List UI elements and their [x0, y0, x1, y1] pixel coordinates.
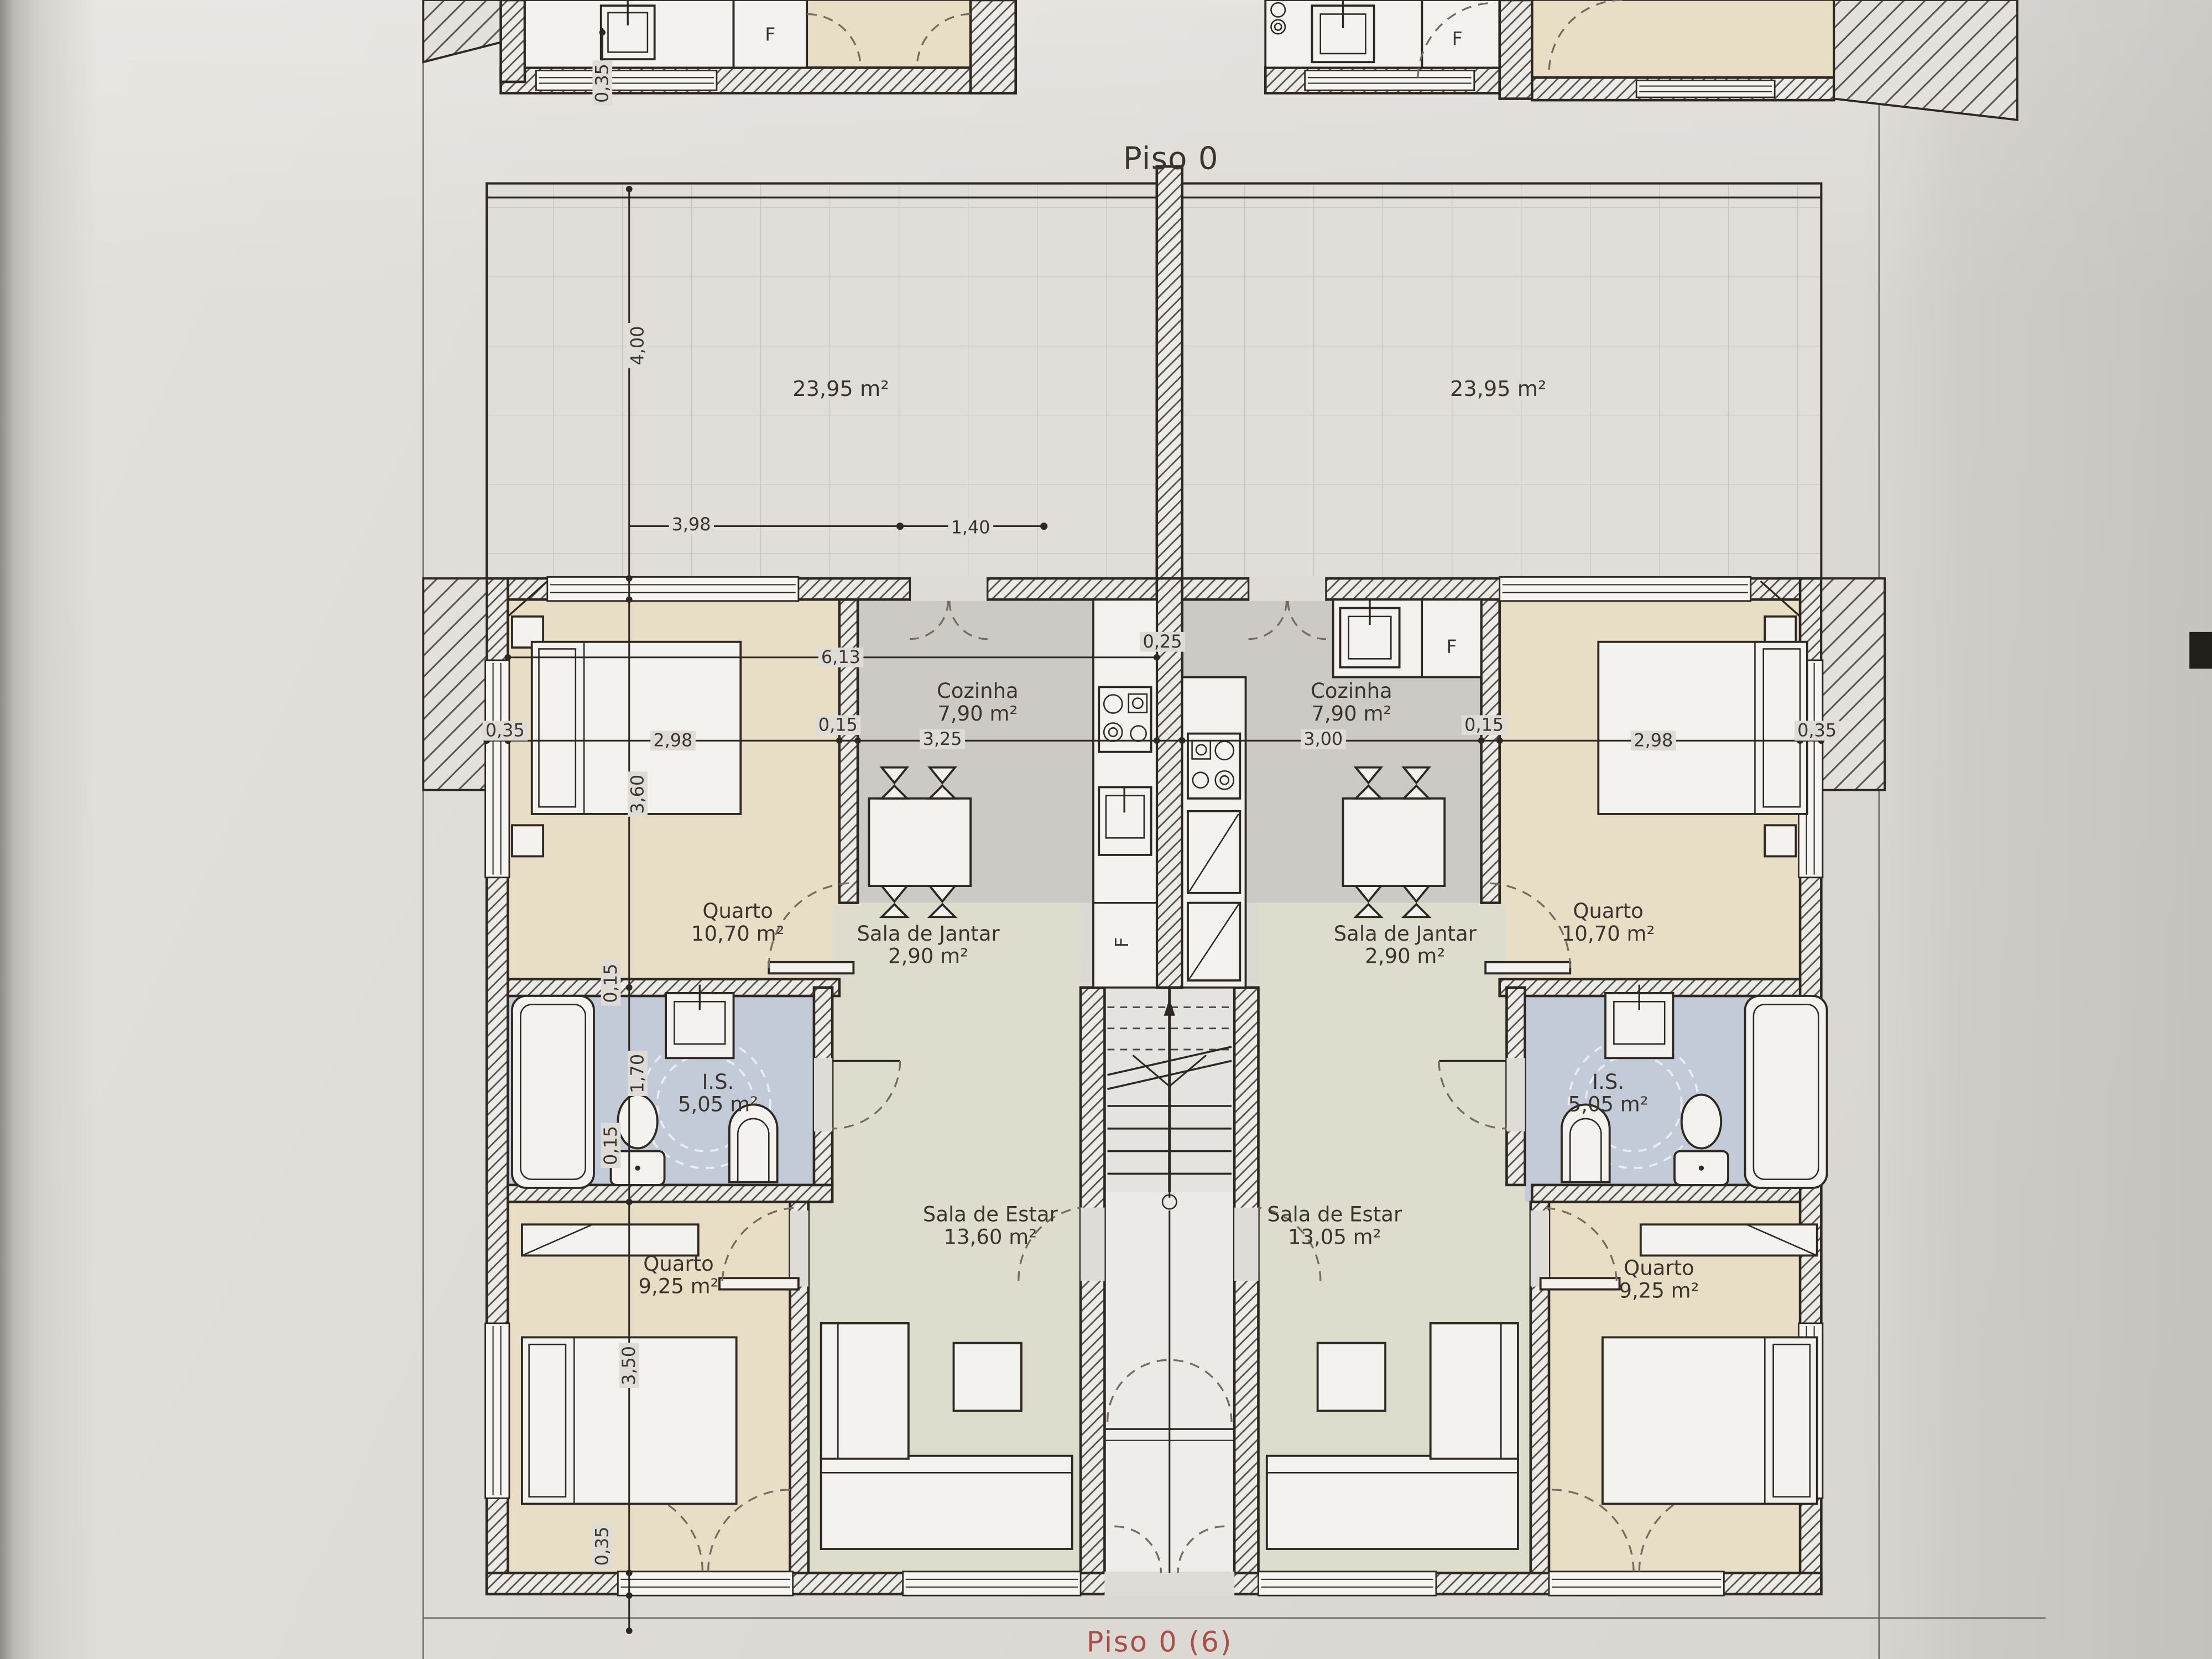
dim-0-15-left: 0,15 [816, 715, 860, 735]
room-name: Cozinha [937, 681, 1019, 704]
room-label-cozinha-right: Cozinha 7,90 m² [1311, 681, 1392, 727]
dim-0-15-v1: 0,15 [601, 961, 621, 1005]
room-name: Quarto [691, 901, 785, 924]
room-label-jantar-left: Sala de Jantar 2,90 m² [857, 924, 999, 969]
room-area: 10,70 m² [691, 924, 785, 947]
room-area: 2,90 m² [1334, 947, 1477, 969]
dim-3-98: 3,98 [669, 515, 713, 535]
upper-floor-partial [423, 0, 2017, 120]
room-name: Sala de Jantar [1334, 924, 1477, 946]
party-wall-terrace [1157, 166, 1182, 578]
room-label-quarto-bottom-right: Quarto 9,25 m² [1619, 1258, 1699, 1304]
room-name: Quarto [1562, 901, 1655, 924]
dim-0-35-top-strip: 0,35 [592, 61, 612, 106]
room-label-quarto-bottom-left: Quarto 9,25 m² [639, 1254, 719, 1300]
fridge-label-upper-left: F [765, 27, 775, 47]
dim-4-00: 4,00 [628, 323, 648, 368]
room-area: 5,05 m² [1568, 1095, 1648, 1118]
dim-3-00: 3,00 [1301, 729, 1345, 749]
room-name: Quarto [1619, 1258, 1699, 1281]
room-name: I.S. [678, 1072, 758, 1094]
room-label-cozinha-left: Cozinha 7,90 m² [937, 681, 1019, 727]
room-name: Cozinha [1311, 681, 1392, 704]
terrace-right-area: 23,95 m² [1450, 378, 1546, 401]
room-label-jantar-right: Sala de Jantar 2,90 m² [1334, 924, 1477, 969]
room-area: 7,90 m² [937, 704, 1019, 727]
room-area: 9,25 m² [639, 1277, 719, 1300]
terrace-left-area: 23,95 m² [792, 378, 889, 401]
dim-3-60: 3,60 [628, 772, 648, 817]
fridge-label-kitchen-left: F [1114, 937, 1135, 948]
dim-0-15-v2: 0,15 [601, 1123, 621, 1168]
room-name: I.S. [1568, 1072, 1648, 1094]
bathtub-icon [512, 996, 594, 1188]
room-area: 9,25 m² [1619, 1281, 1699, 1303]
dim-3-25: 3,25 [920, 729, 964, 749]
bathtub-icon [1745, 996, 1827, 1188]
fridge-label-upper-right: F [1452, 30, 1463, 51]
dim-1-40: 1,40 [948, 518, 993, 538]
stove-icon [1188, 734, 1240, 799]
floor-title: Piso 0 [1123, 143, 1219, 178]
dim-0-35-right: 0,35 [1794, 721, 1839, 741]
room-area: 13,60 m² [923, 1227, 1058, 1250]
floor-plan-drawing [0, 0, 2212, 1659]
room-area: 13,05 m² [1267, 1227, 1402, 1250]
dim-1-70: 1,70 [628, 1051, 648, 1096]
room-name: Quarto [639, 1254, 719, 1276]
dim-6-13: 6,13 [818, 648, 863, 667]
room-name: Sala de Estar [923, 1204, 1058, 1227]
toilet-icon [618, 1095, 657, 1149]
dim-0-25: 0,25 [1140, 632, 1185, 652]
room-label-quarto-top-left: Quarto 10,70 m² [691, 901, 785, 947]
room-area: 5,05 m² [678, 1095, 758, 1118]
room-area: 2,90 m² [857, 947, 999, 969]
room-name: Sala de Estar [1267, 1204, 1402, 1227]
room-label-estar-left: Sala de Estar 13,60 m² [923, 1204, 1058, 1250]
dim-0-35-left: 0,35 [483, 721, 528, 741]
room-label-is-right: I.S. 5,05 m² [1568, 1072, 1648, 1118]
room-label-estar-right: Sala de Estar 13,05 m² [1267, 1204, 1402, 1250]
room-area: 10,70 m² [1562, 924, 1655, 947]
dim-0-15-right: 0,15 [1462, 715, 1506, 735]
room-area: 7,90 m² [1311, 704, 1392, 727]
room-name: Sala de Jantar [857, 924, 999, 946]
sheet-label: Piso 0 (6) [1087, 1626, 1233, 1658]
dim-2-98-left: 2,98 [650, 731, 695, 750]
floor-plan-photo: Piso 0 23,95 m² 23,95 m² Cozinha 7,90 m²… [0, 0, 2212, 1659]
fridge-label-kitchen-right: F [1446, 639, 1457, 659]
room-label-is-left: I.S. 5,05 m² [678, 1072, 758, 1118]
toilet-icon [1682, 1095, 1721, 1149]
dim-2-98-right: 2,98 [1631, 731, 1676, 750]
room-label-quarto-top-right: Quarto 10,70 m² [1562, 901, 1655, 947]
dim-3-50: 3,50 [619, 1343, 639, 1388]
dim-0-35-bottom: 0,35 [592, 1524, 612, 1568]
